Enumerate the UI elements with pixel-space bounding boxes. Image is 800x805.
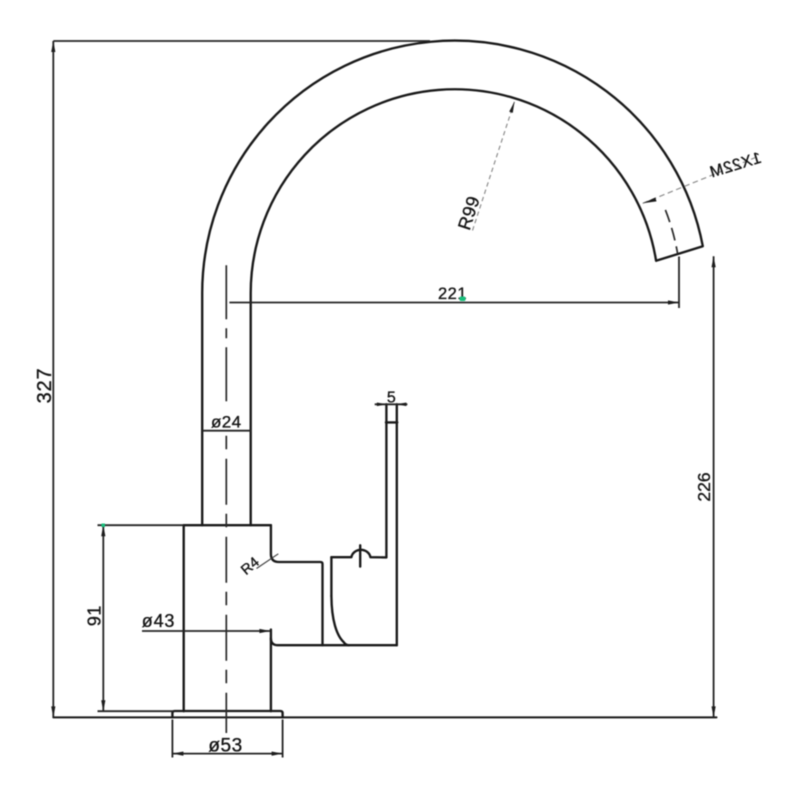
svg-text:1X22M: 1X22M bbox=[708, 150, 764, 182]
svg-text:226: 226 bbox=[694, 472, 714, 501]
svg-text:ø43: ø43 bbox=[142, 611, 175, 631]
svg-text:ø24: ø24 bbox=[211, 412, 242, 431]
svg-text:ø53: ø53 bbox=[208, 736, 243, 757]
svg-text:R4: R4 bbox=[238, 554, 262, 578]
svg-text:5: 5 bbox=[387, 389, 396, 406]
svg-text:91: 91 bbox=[85, 605, 105, 626]
svg-text:R99: R99 bbox=[454, 193, 484, 232]
svg-text:327: 327 bbox=[34, 368, 56, 404]
